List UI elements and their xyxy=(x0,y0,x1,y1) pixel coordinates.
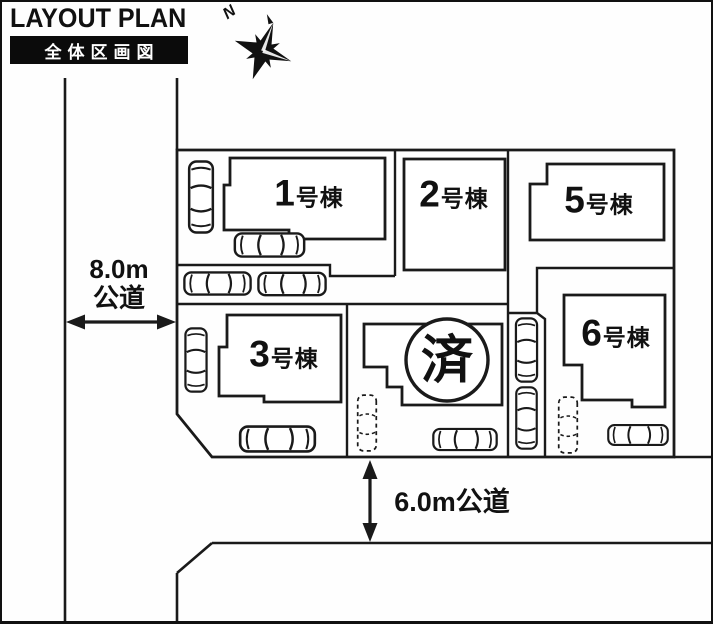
car-top-view-icon xyxy=(184,272,250,294)
subtitle-text: 全体区画図 xyxy=(39,38,160,63)
building-5-label: 5号棟 xyxy=(564,182,634,219)
double-headed-arrow-icon xyxy=(66,315,176,330)
building-3-label: 3号棟 xyxy=(249,336,319,373)
car-top-view-icon xyxy=(189,161,213,232)
subtitle-badge: 全体区画図 xyxy=(10,36,188,64)
car-top-view-icon xyxy=(516,387,536,448)
road-south-width-label: 6.0m公道 xyxy=(394,487,510,517)
layout-plan-page: LAYOUT PLAN 全体区画図 N 8.0m 公道 6.0m公道 1号棟 2… xyxy=(0,0,713,624)
dashed-parking-space-icon xyxy=(559,397,578,453)
road-west-width-label: 8.0m 公道 xyxy=(89,255,148,313)
car-top-view-icon xyxy=(240,427,315,452)
building-2-label: 2号棟 xyxy=(419,176,489,213)
car-top-view-icon xyxy=(185,328,206,391)
car-top-view-icon xyxy=(608,425,668,445)
car-top-view-icon xyxy=(258,273,325,295)
double-headed-arrow-icon xyxy=(363,460,378,542)
sold-mark: 済 xyxy=(421,335,473,387)
road-west-width-value: 8.0m xyxy=(89,255,148,284)
building-6-label: 6号棟 xyxy=(581,315,651,352)
car-top-view-icon xyxy=(516,318,537,381)
dashed-parking-space-icon xyxy=(358,395,377,451)
page-title: LAYOUT PLAN xyxy=(10,3,186,34)
car-top-view-icon xyxy=(433,429,496,450)
car-top-view-icon xyxy=(235,233,304,256)
road-west-type: 公道 xyxy=(89,284,148,313)
building-1-label: 1号棟 xyxy=(274,175,344,212)
